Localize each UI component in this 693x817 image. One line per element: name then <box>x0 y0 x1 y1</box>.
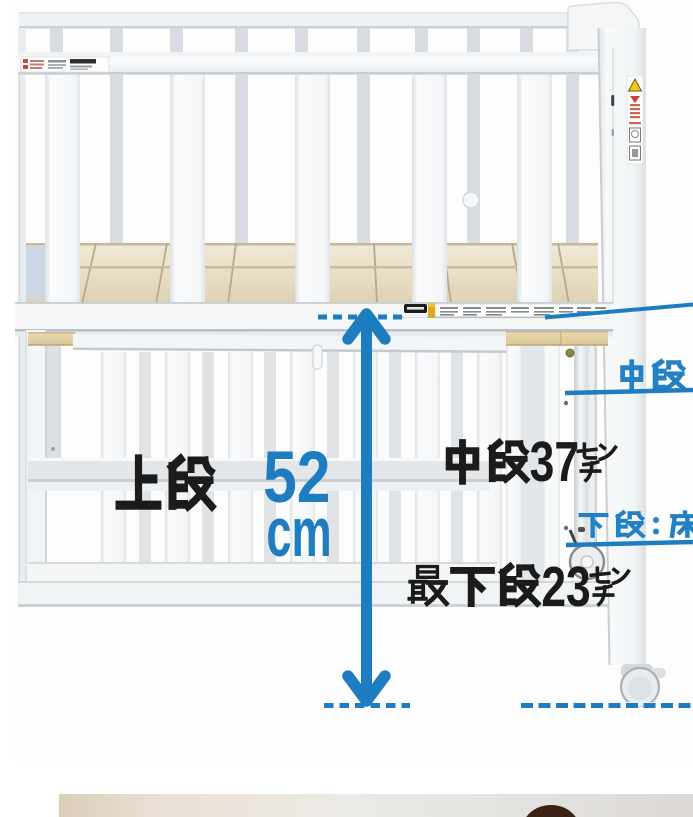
svg-text:cm: cm <box>266 494 331 571</box>
svg-text:37: 37 <box>530 430 579 494</box>
svg-text:23: 23 <box>541 555 590 619</box>
